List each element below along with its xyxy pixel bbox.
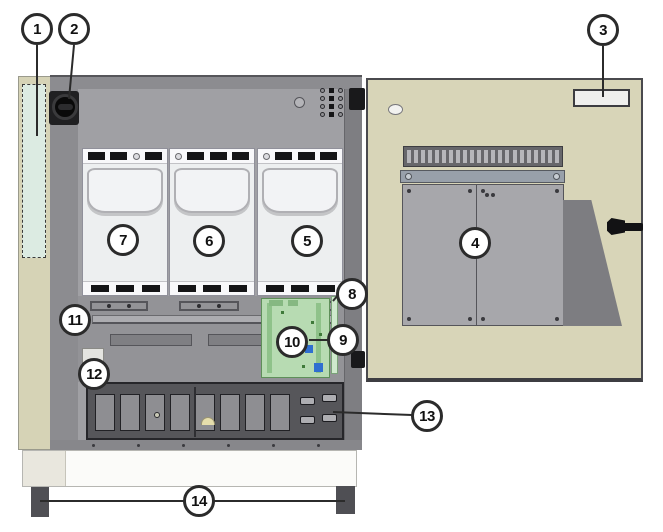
parts-diagram: 1 2 3 4 5 6 7 8 9 10 11 12 13 14 — [0, 0, 663, 532]
leader-lines — [0, 0, 663, 532]
leader-line-2 — [69, 45, 74, 99]
callout-2: 2 — [58, 13, 90, 45]
callout-3: 3 — [587, 14, 619, 46]
callout-12: 12 — [78, 358, 110, 390]
leader-line-13 — [333, 412, 412, 415]
callout-14: 14 — [183, 485, 215, 517]
callout-5: 5 — [291, 225, 323, 257]
callout-10: 10 — [276, 326, 308, 358]
callout-9: 9 — [327, 324, 359, 356]
callout-4: 4 — [459, 227, 491, 259]
callout-8: 8 — [336, 278, 368, 310]
callout-1: 1 — [21, 13, 53, 45]
callout-11: 11 — [59, 304, 91, 336]
callout-13: 13 — [411, 400, 443, 432]
callout-7: 7 — [107, 224, 139, 256]
callout-6: 6 — [193, 225, 225, 257]
